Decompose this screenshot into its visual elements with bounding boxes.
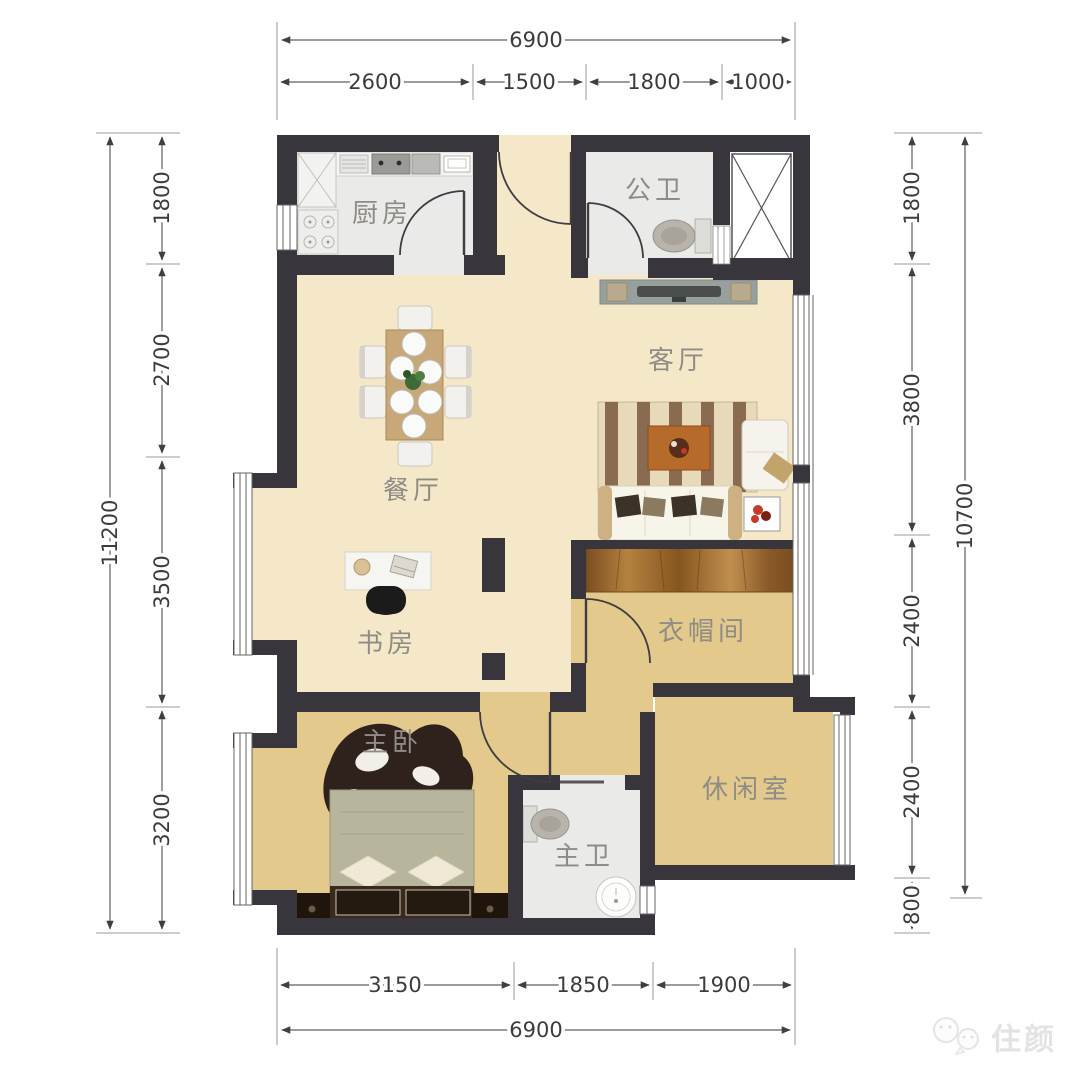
room-label-master-bath: 主卫	[554, 841, 614, 871]
dim-right-seg4: 800	[900, 885, 924, 925]
cooktop	[412, 154, 440, 174]
floor-bay2-sill	[248, 748, 297, 890]
dim-right-seg2: 2400	[900, 594, 924, 647]
speaker	[607, 283, 627, 301]
armchair	[742, 420, 795, 490]
dim-right: 1800 3800 2400 2400 800 10700	[900, 137, 977, 929]
dim-left-seg3: 3200	[150, 793, 174, 846]
desk-lamp	[354, 559, 370, 575]
room-label-public-bath: 公卫	[625, 175, 685, 205]
floorplan-drawing: 厨房 公卫 客厅 餐厅 书房 衣帽间 主卧 休闲室 主卫 6900	[0, 0, 1080, 1080]
pillow	[700, 497, 724, 518]
sofa	[598, 486, 742, 540]
watermark: 住颜	[934, 1018, 1057, 1057]
room-label-living: 客厅	[648, 345, 708, 375]
stove-cabinet	[298, 210, 338, 254]
leisure-window	[834, 715, 850, 865]
room-label-cloak: 衣帽间	[658, 616, 748, 646]
dim-left-seg2: 3500	[150, 555, 174, 608]
artwork	[744, 497, 780, 531]
chair	[398, 442, 432, 466]
watermark-bubble-icon-2	[958, 1029, 978, 1049]
dim-bottom: 3150 1850 1900 6900	[281, 973, 791, 1042]
dim-bottom-seg2: 1900	[697, 973, 750, 997]
dim-bottom-seg0: 3150	[368, 973, 421, 997]
dim-left-seg1: 2700	[150, 333, 174, 386]
bedroom-bay-window	[234, 733, 252, 905]
bed-pillow	[336, 890, 400, 915]
room-label-dining: 餐厅	[383, 475, 443, 505]
dim-bottom-seg1: 1850	[556, 973, 609, 997]
floor-bay1-sill	[248, 488, 297, 640]
sink	[372, 154, 410, 174]
dim-left: 11200 1800 2700 3500 3200	[98, 137, 174, 929]
floor-study-corridor	[297, 540, 571, 692]
pillow	[671, 495, 697, 517]
floor-kitchen-door	[394, 255, 464, 275]
elevator-shaft-door	[713, 226, 730, 264]
elevator	[732, 154, 791, 262]
dim-top-total: 6900	[509, 28, 562, 52]
floor-bedroom-east	[508, 712, 586, 775]
dim-left-total: 11200	[98, 500, 122, 567]
tv	[637, 286, 721, 297]
dim-right-seg1: 3800	[900, 373, 924, 426]
public-bath-fixtures	[653, 219, 711, 253]
dim-left-seg0: 1800	[150, 171, 174, 224]
bed-pillow	[406, 890, 470, 915]
dim-right-total: 10700	[953, 483, 977, 550]
room-label-kitchen: 厨房	[352, 198, 412, 228]
pillow	[642, 497, 666, 517]
kitchen-window	[277, 205, 297, 250]
dim-top-seg0: 2600	[348, 70, 401, 94]
watermark-bubble-icon	[934, 1018, 958, 1042]
chair	[398, 306, 432, 330]
cloak-furniture	[586, 548, 793, 592]
living-window	[793, 295, 813, 675]
floor-bedroom-doorway	[480, 692, 550, 712]
dim-top: 6900 2600 1500 1800 1000	[281, 28, 791, 94]
floor-cloak-door	[571, 599, 586, 663]
floor-hall	[497, 135, 571, 275]
dim-top-seg3: 1000	[731, 70, 784, 94]
room-label-study: 书房	[357, 628, 417, 658]
wardrobe	[586, 548, 793, 592]
pillow	[615, 494, 642, 517]
dim-right-seg0: 1800	[900, 171, 924, 224]
speaker	[731, 283, 751, 301]
floorplan-page: 厨房 公卫 客厅 餐厅 书房 衣帽间 主卧 休闲室 主卫 6900	[0, 0, 1080, 1080]
room-label-bedroom: 主卧	[362, 727, 422, 757]
toilet-tank	[695, 219, 711, 253]
room-label-leisure: 休闲室	[702, 774, 792, 804]
dim-top-seg2: 1800	[627, 70, 680, 94]
dim-right-seg3: 2400	[900, 765, 924, 818]
master-bath-window	[640, 886, 655, 914]
study-bay-window	[234, 473, 252, 655]
watermark-text: 住颜	[991, 1024, 1057, 1057]
dim-top-seg1: 1500	[502, 70, 555, 94]
dim-bottom-total: 6900	[509, 1018, 562, 1042]
floor-public-bath-door	[588, 255, 648, 278]
